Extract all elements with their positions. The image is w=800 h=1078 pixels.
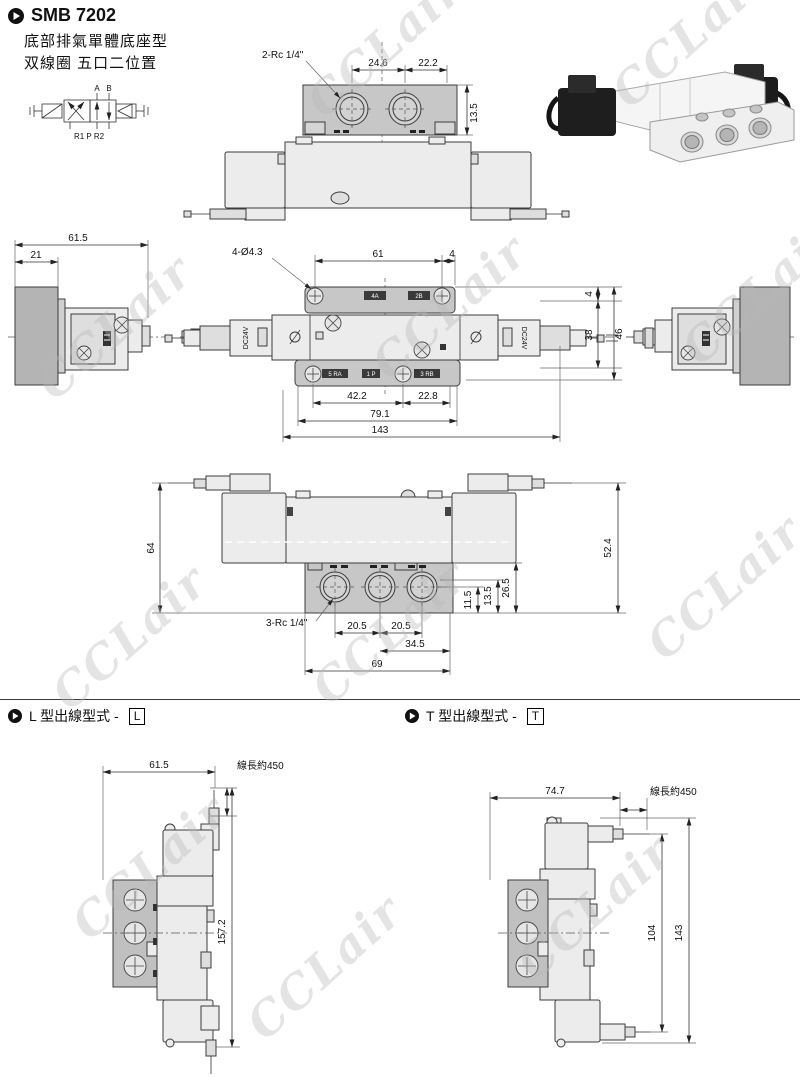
front-view-base bbox=[305, 563, 453, 613]
symbol-ports-bottom: R1 P R2 bbox=[74, 132, 105, 141]
t-type-body bbox=[498, 817, 650, 1047]
dim-label: 22.8 bbox=[418, 391, 438, 402]
dim-label: 38 bbox=[584, 329, 595, 341]
datasheet-page: CCLair CCLair CCLair CCLair CCLair CCLai… bbox=[0, 0, 800, 1078]
port-mark: 2B bbox=[415, 294, 422, 300]
wire-length-label: 線長約450 bbox=[237, 759, 284, 772]
drawing-front-view: 64 52.4 26.5 13.5 11.5 20.5 20.5 34.5 bbox=[0, 455, 800, 699]
dim-label: 74.7 bbox=[545, 786, 565, 797]
dim-label: 34.5 bbox=[405, 639, 425, 650]
dim-label: 13.5 bbox=[469, 103, 480, 123]
dim-label: 4 bbox=[449, 249, 455, 260]
section-l-title: L 型出線型式 - bbox=[29, 706, 119, 726]
symbol-port-b: B bbox=[106, 84, 111, 93]
dim-label: 22.2 bbox=[418, 58, 438, 69]
port-mark: 3 RB bbox=[420, 372, 433, 378]
dim-label: 143 bbox=[372, 425, 389, 436]
section-t-heading: T 型出線型式 - T bbox=[405, 706, 544, 726]
wire-length-label: 線長約450 bbox=[650, 785, 697, 798]
coil-voltage-label: DC24V bbox=[520, 327, 527, 350]
plan-view: 4A 2B 5 RA 1 P 3 RB bbox=[165, 278, 622, 396]
section-t-code: T bbox=[527, 708, 544, 725]
port-mark: 4A bbox=[371, 294, 378, 300]
dim-label: 143 bbox=[674, 924, 685, 941]
dim-label: 46 bbox=[614, 328, 625, 340]
drawing-l-type: 61.5 線長約450 157.2 bbox=[75, 752, 310, 1078]
dim-label: 69 bbox=[371, 659, 383, 670]
page-title: SMB 7202 bbox=[31, 5, 116, 26]
dim-label: 42.2 bbox=[347, 391, 367, 402]
section-bullet-icon bbox=[8, 709, 22, 723]
drawing-top-view: 24.6 22.2 13.5 2-Rc 1/4" bbox=[170, 38, 570, 233]
drawing-t-type: 74.7 線長約450 104 143 bbox=[470, 752, 730, 1078]
dim-label: 20.5 bbox=[347, 621, 367, 632]
top-view-body bbox=[184, 137, 569, 220]
section-bullet-icon bbox=[8, 8, 24, 24]
dim-label: 26.5 bbox=[501, 578, 512, 598]
dim-label: 4 bbox=[584, 291, 595, 297]
coil-voltage-label: DC24V bbox=[243, 326, 250, 349]
dim-label: 21 bbox=[30, 250, 42, 261]
dim-label: 64 bbox=[146, 542, 157, 554]
dim-label: 13.5 bbox=[483, 586, 494, 606]
dim-label: 20.5 bbox=[391, 621, 411, 632]
section-divider bbox=[0, 699, 800, 700]
page-subtitle-1: 底部排氣單體底座型 bbox=[24, 30, 168, 51]
dim-label: 157.2 bbox=[217, 919, 228, 944]
svg-defs bbox=[0, 0, 1, 1]
thread-label: 2-Rc 1/4" bbox=[262, 50, 304, 61]
port-mark: 5 RA bbox=[328, 372, 341, 378]
dim-label: 61 bbox=[372, 249, 384, 260]
dim-label: 11.5 bbox=[463, 590, 474, 609]
symbol-port-a: A bbox=[94, 84, 100, 93]
hole-label: 4-Ø4.3 bbox=[232, 247, 263, 258]
section-l-heading: L 型出線型式 - L bbox=[8, 706, 145, 726]
dim-label: 79.1 bbox=[370, 409, 390, 420]
dim-label: 61.5 bbox=[149, 760, 169, 771]
section-t-title: T 型出線型式 - bbox=[426, 706, 517, 726]
top-view-base bbox=[303, 85, 457, 135]
dim-label: 24.6 bbox=[368, 58, 388, 69]
dim-label: 52.4 bbox=[603, 538, 614, 558]
page-subtitle-2: 双線圈 五口二位置 bbox=[24, 52, 157, 73]
section-bullet-icon bbox=[405, 709, 419, 723]
section-l-code: L bbox=[129, 708, 146, 725]
page-title-row: SMB 7202 bbox=[8, 5, 116, 26]
thread-label: 3-Rc 1/4" bbox=[266, 618, 308, 629]
port-mark: 1 P bbox=[366, 372, 375, 378]
pneumatic-symbol: A B R1 P R2 bbox=[22, 84, 157, 142]
right-end-view bbox=[626, 287, 795, 385]
dim-label: 61.5 bbox=[68, 233, 88, 244]
product-photo bbox=[540, 30, 800, 165]
drawing-plan-view-band: 61.5 21 4A 2B bbox=[0, 228, 800, 462]
left-end-view bbox=[8, 287, 214, 385]
dim-label: 104 bbox=[647, 924, 658, 941]
l-type-body bbox=[103, 790, 227, 1074]
front-view-body bbox=[168, 474, 572, 563]
